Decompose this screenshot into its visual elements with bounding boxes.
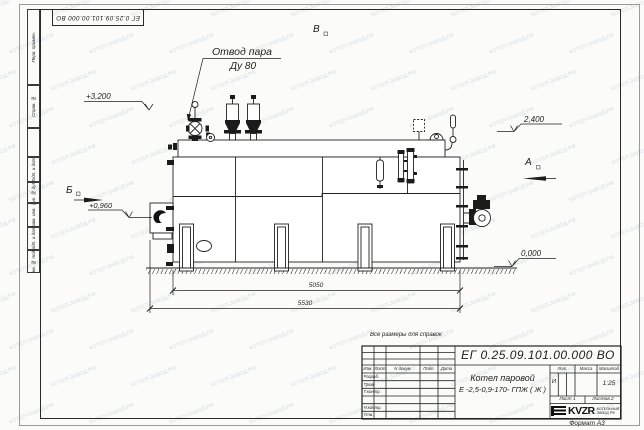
scale-value: 1:25 <box>597 380 621 387</box>
margin-box-podp1: Подп. и дата <box>27 157 40 182</box>
mass-label: Масса <box>575 366 597 371</box>
tb-row-razrab: Разраб. <box>364 374 386 379</box>
drawing-page: { "watermark": {"text": "КОТЕЛ-ЗАВОД.РФ"… <box>0 0 644 430</box>
elevation-burner: +0,960 <box>89 201 112 210</box>
tb-col-ndoc: N докум. <box>386 366 420 371</box>
elevation-ground: 0,000 <box>521 249 541 258</box>
lit-value: И <box>550 379 558 385</box>
corner-stamp: ЕГ 0.25.09.101.00.000 ВО <box>52 9 144 26</box>
ground-hatch <box>146 269 517 275</box>
margin-label: Справ. № <box>31 96 36 117</box>
margin-box-perv: Перв. примен. <box>27 9 40 85</box>
sheets-total: Листов 2 <box>585 397 621 402</box>
doc-number: ЕГ 0.25.09.101.00.000 ВО <box>455 348 621 365</box>
margin-box-vzam: Взам. инв. № <box>27 203 40 227</box>
margin-box-empty <box>27 128 40 157</box>
elevation-drum: 2,400 <box>524 115 544 124</box>
tb-col-podp: Подп. <box>420 366 438 371</box>
tb-col-izm: Изм. <box>362 366 374 371</box>
margin-label: Перв. примен. <box>31 32 36 63</box>
margin-box-invpodl: Инв. № подл. <box>27 250 40 273</box>
margin-label: Инв. № подл. <box>31 250 36 273</box>
steam-outlet-label: Отвод пара <box>200 46 284 58</box>
margin-box-podp2: Подп. и дата <box>27 227 40 250</box>
view-marker-a: А <box>525 157 532 168</box>
scale-label: Масштаб <box>597 366 621 371</box>
margin-label: Инв. № дубл. <box>31 182 36 203</box>
product-name-line2: Е -2,5-0,9-170- ГПЖ ( Ж ) <box>455 385 550 394</box>
margin-box-invdubl: Инв. № дубл. <box>27 182 40 203</box>
tb-col-data: Дата <box>438 366 455 371</box>
tb-row-tkontr: Т.контр. <box>364 389 386 394</box>
kvzr-logo-text: KVZR <box>568 405 595 417</box>
tb-row-nkontr: Н.контр. <box>364 405 386 410</box>
view-marker-v: В <box>313 24 320 35</box>
reference-note: Все размеры для справок <box>370 332 442 338</box>
org-name: КОТЕЛЬНЫЙ ЗАВОД РФ <box>597 407 620 415</box>
tb-row-utv: Утв. <box>364 412 386 417</box>
view-marker-b: Б <box>66 185 73 196</box>
sheet-number: Лист 1 <box>550 397 585 402</box>
tb-col-list: Лист <box>374 366 386 371</box>
margin-box-sprav: Справ. № <box>27 85 40 128</box>
kvzr-logo-icon <box>551 406 566 416</box>
steam-outlet-dn: Ду 80 <box>210 61 276 72</box>
margin-label: Взам. инв. № <box>31 203 36 227</box>
margin-label: Подп. и дата <box>31 157 36 182</box>
dimension-5530: 5530 <box>279 300 331 307</box>
org-logo-row: KVZR КОТЕЛЬНЫЙ ЗАВОД РФ <box>551 404 620 418</box>
product-name-line1: Котел паровой <box>455 373 550 383</box>
format-label: Формат А3 <box>552 420 622 427</box>
dimension-5050: 5050 <box>290 282 342 289</box>
elevation-top: +3,200 <box>86 92 111 101</box>
corner-stamp-text: ЕГ 0.25.09.101.00.000 ВО <box>56 14 140 21</box>
lit-label: Лит. <box>550 366 575 371</box>
tb-row-prov: Пров. <box>364 382 386 387</box>
margin-label: Подп. и дата <box>31 227 36 250</box>
